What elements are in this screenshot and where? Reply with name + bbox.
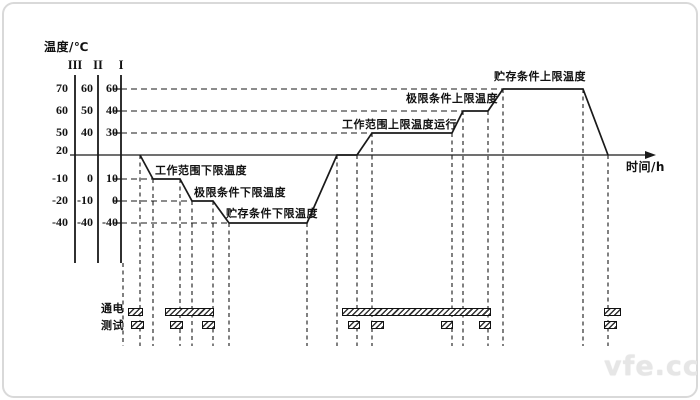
x-axis-title: 时间/h [626, 160, 665, 175]
scale-i-tick-label: 60 [85, 81, 118, 96]
time-axis [70, 151, 656, 159]
scale-i-tick-label: 40 [85, 103, 118, 118]
scale-iii-tick-label: 20 [26, 143, 68, 158]
power-on-bar [128, 308, 143, 316]
test-bar [441, 321, 453, 329]
test-row-label: 测试 [101, 318, 124, 333]
test-bar [131, 321, 144, 329]
test-bar [202, 321, 215, 329]
scale-i-tick-label: -40 [85, 215, 118, 230]
watermark: vfe.cc [604, 351, 700, 382]
test-bar [348, 321, 360, 329]
test-bar [479, 321, 491, 329]
y-axis-title: 温度/℃ [44, 40, 89, 55]
level-guide-lines [121, 89, 503, 223]
time-axis-arrow-icon [645, 151, 656, 159]
scale-i-tick-label: 10 [85, 171, 118, 186]
annotation-limit-lower: 极限条件下限温度 [194, 185, 286, 200]
power-on-bar [342, 308, 491, 316]
annotation-limit-upper: 极限条件上限温度 [406, 91, 498, 106]
test-bar [604, 321, 617, 329]
test-bar [170, 321, 183, 329]
scale-i-header: I [107, 58, 135, 73]
annotation-storage-upper: 贮存条件上限温度 [494, 69, 586, 84]
power-on-row-label: 通电 [101, 301, 124, 316]
annotation-operating-lower: 工作范围下限温度 [155, 163, 247, 178]
annotation-operating-upper: 工作范围上限温度运行 [342, 117, 457, 132]
test-bar [371, 321, 384, 329]
scale-i-tick-label: 0 [85, 193, 118, 208]
annotation-storage-lower: 贮存条件下限温度 [226, 206, 318, 221]
temperature-curve [140, 89, 608, 223]
power-on-bar [604, 308, 621, 316]
power-on-bar [165, 308, 214, 316]
scale-i-tick-label: 30 [85, 125, 118, 140]
diagram-canvas: 温度/℃ 时间/h III II I 70 60 50 20 -10 -20 -… [0, 0, 700, 400]
